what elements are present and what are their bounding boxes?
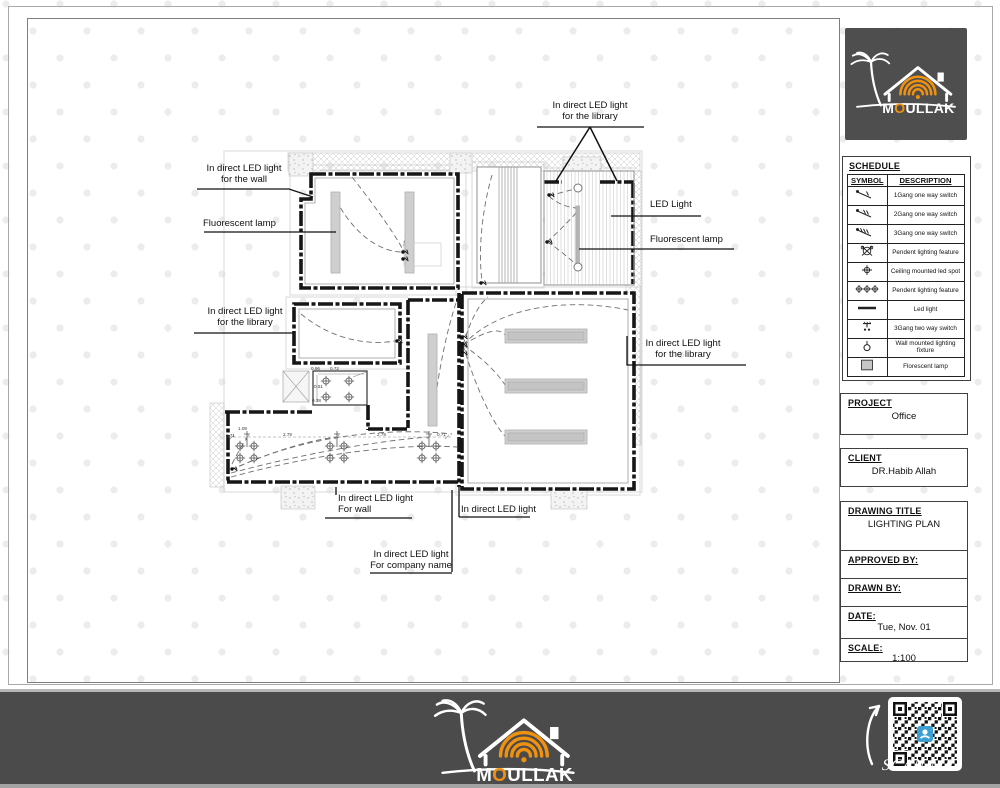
label-line: In direct LED light [531,100,649,111]
label-line: In direct LED light [202,163,286,174]
dim-value: 0.38 [312,398,321,403]
date-value: Tue, Nov. 01 [841,622,967,633]
dim-value: 2.79 [283,432,292,437]
label-line: For wall [338,504,428,515]
drawing-title-value: LIGHTING PLAN [841,519,967,530]
schedule-row: 2Gang one way switch [848,206,965,225]
approved-by-label: APPROVED BY: [848,555,967,565]
led-light-icon [852,302,882,314]
label-led-light: LED Light [650,199,710,210]
client-value: DR.Habib Allah [841,466,967,477]
project-label: PROJECT [848,398,967,408]
ceiling-spot-icon [852,264,882,276]
schedule-header-row: SYMBOL DESCRIPTION [848,175,965,187]
label-led-bottom: In direct LED light [461,504,541,515]
dim-value: 0.96 [311,366,320,371]
wall-light-icon [852,340,882,352]
scan-me-text: SCAN ME [881,757,973,775]
dim-value: 0.71 [437,432,446,437]
schedule-row: 3Gang two way switch [848,320,965,339]
project-value: Office [841,411,967,422]
moullak-logo-icon: MOULLAK [850,50,962,116]
pendant-light-icon [852,245,882,257]
label-company-bottom: In direct LED light For company name [368,549,454,572]
switch-1gang-icon [852,188,882,200]
scale-label: SCALE: [848,643,967,653]
dim-value: 0.51 [314,384,323,389]
label-wall-bottom: In direct LED light For wall [338,493,428,516]
project-box: PROJECT Office [840,393,968,435]
pendant-triple-icon [852,283,882,295]
scale-section: SCALE: 1:100 [841,638,967,665]
brand-wordmark: MOULLAK [476,764,573,784]
label-line: for the library [531,111,649,122]
label-library-mid-left: In direct LED light for the library [200,306,290,329]
dim-value: 0.72 [330,366,339,371]
schedule-heading: SCHEDULE [843,157,970,173]
label-line: In direct LED light [368,549,454,560]
schedule-col-description: DESCRIPTION [887,175,964,187]
date-label: DATE: [848,611,967,621]
schedule-row: Wall mounted lighting fixture [848,339,965,358]
label-top-library: In direct LED light for the library [531,100,649,123]
scale-value: 1:100 [841,653,967,664]
label-wall-top-left: In direct LED light for the wall [202,163,286,186]
dim-value: 2.79 [377,432,386,437]
schedule-row: Ceiling mounted led spot [848,263,965,282]
label-line: for the wall [202,174,286,185]
schedule-table: SYMBOL DESCRIPTION 1Gang one way switch … [847,174,965,377]
drawn-by-label: DRAWN BY: [848,583,967,593]
switch-3gang-icon [852,226,882,238]
schedule-row: Florescent lamp [848,358,965,377]
drawn-by-section: DRAWN BY: [841,578,967,606]
label-line: for the library [200,317,290,328]
switch-3gang-2way-icon [852,321,882,333]
schedule-row: Led light [848,301,965,320]
label-fluorescent-left: Fluorescent lamp [203,218,283,229]
label-line: In direct LED light [643,338,723,349]
schedule-row: Pendent lighting feature [848,244,965,263]
schedule-row: 1Gang one way switch [848,187,965,206]
drawing-info-box: DRAWING TITLE LIGHTING PLAN APPROVED BY:… [840,501,968,662]
drawing-title-section: DRAWING TITLE LIGHTING PLAN [841,506,967,550]
schedule-col-symbol: SYMBOL [848,175,888,187]
switch-2gang-icon [852,207,882,219]
label-line: In direct LED light [338,493,428,504]
dim-value: 1.08 [238,426,247,431]
dim-value: 0.71 [226,433,235,438]
label-line: In direct LED light [200,306,290,317]
label-fluorescent-right: Fluorescent lamp [650,234,740,245]
label-library-right: In direct LED light for the library [643,338,723,361]
client-label: CLIENT [848,453,967,463]
label-line: for the library [643,349,723,360]
schedule-row: Pendent lighting feature [848,282,965,301]
fluorescent-lamp-icon [852,359,882,371]
moullak-logo-footer-icon: MOULLAK [424,698,592,784]
drawing-title-label: DRAWING TITLE [848,506,967,516]
company-logo-box: MOULLAK [845,28,967,140]
label-line: For company name [368,560,454,571]
client-box: CLIENT DR.Habib Allah [840,448,968,487]
schedule-panel: SCHEDULE SYMBOL DESCRIPTION 1Gang one wa… [842,156,971,381]
schedule-row: 3Gang one way switch [848,225,965,244]
date-section: DATE: Tue, Nov. 01 [841,606,967,638]
approved-by-section: APPROVED BY: [841,550,967,578]
brand-wordmark: MOULLAK [882,100,954,116]
drawing-sheet: In direct LED light for the library In d… [0,0,1000,788]
